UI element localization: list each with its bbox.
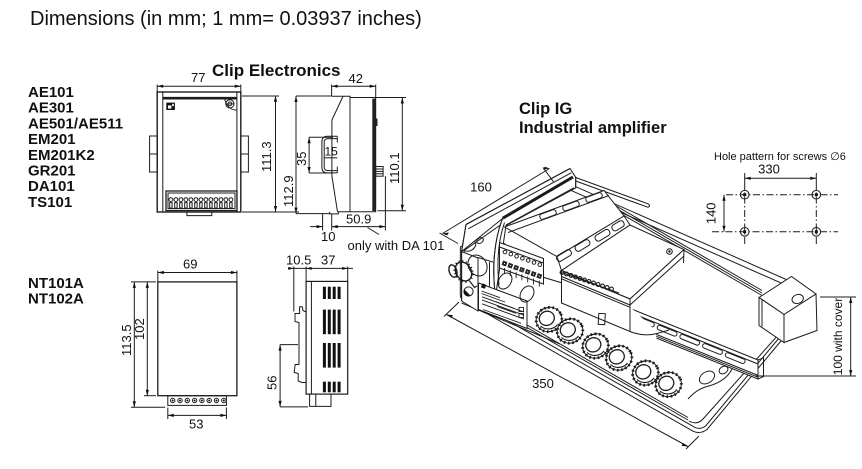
svg-text:Hole pattern for screws ∅6: Hole pattern for screws ∅6 <box>714 151 846 163</box>
svg-text:110.1: 110.1 <box>387 152 402 184</box>
svg-text:69: 69 <box>183 257 197 272</box>
svg-text:15: 15 <box>325 144 339 158</box>
svg-text:10.5: 10.5 <box>286 253 311 268</box>
svg-text:50.9: 50.9 <box>346 212 371 227</box>
svg-text:140: 140 <box>704 202 719 224</box>
svg-text:NT101A: NT101A <box>28 275 84 292</box>
svg-text:AE501/AE511: AE501/AE511 <box>28 115 123 132</box>
svg-text:42: 42 <box>349 71 363 86</box>
svg-text:53: 53 <box>189 417 203 432</box>
svg-text:NT102A: NT102A <box>28 291 84 308</box>
svg-text:330: 330 <box>758 162 780 177</box>
svg-text:AE301: AE301 <box>28 100 74 117</box>
svg-text:100 with cover: 100 with cover <box>831 298 845 375</box>
svg-text:DA101: DA101 <box>28 178 75 195</box>
svg-text:111.3: 111.3 <box>259 141 274 172</box>
svg-text:112.9: 112.9 <box>281 175 296 207</box>
svg-text:102: 102 <box>132 318 147 340</box>
svg-text:only with DA 101: only with DA 101 <box>348 238 445 253</box>
svg-text:77: 77 <box>191 70 205 85</box>
svg-text:EM201: EM201 <box>28 131 76 148</box>
svg-text:37: 37 <box>321 253 335 268</box>
svg-text:35: 35 <box>294 152 309 166</box>
svg-text:160: 160 <box>470 180 492 195</box>
svg-text:GR201: GR201 <box>28 163 76 180</box>
svg-text:10: 10 <box>321 229 335 244</box>
svg-text:Industrial amplifier: Industrial amplifier <box>519 119 667 137</box>
svg-text:TS101: TS101 <box>28 194 72 211</box>
svg-text:Dimensions (in mm; 1 mm= 0.039: Dimensions (in mm; 1 mm= 0.03937 inches) <box>30 8 422 30</box>
svg-text:350: 350 <box>532 376 554 391</box>
svg-text:56: 56 <box>265 376 280 390</box>
svg-text:Clip Electronics: Clip Electronics <box>212 61 340 80</box>
svg-text:EM201K2: EM201K2 <box>28 147 95 164</box>
svg-text:AE101: AE101 <box>28 84 74 101</box>
svg-text:Clip IG: Clip IG <box>519 100 572 118</box>
